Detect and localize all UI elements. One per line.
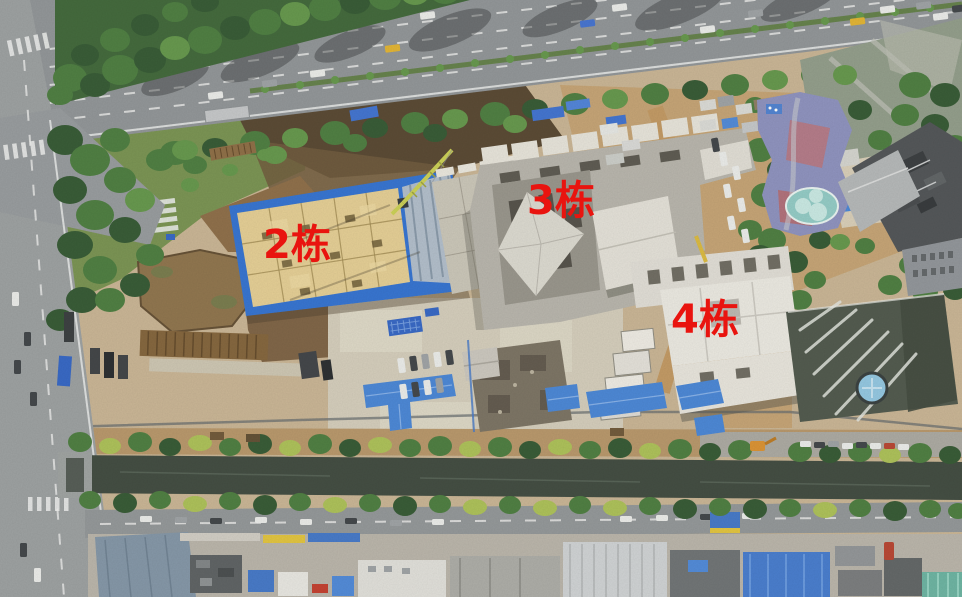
photo-grain xyxy=(0,0,962,597)
label-building-2: 2栋 xyxy=(263,222,331,268)
label-building-4: 4栋 xyxy=(671,297,739,343)
label-building-3: 3栋 xyxy=(527,178,595,224)
construction-site-aerial-photo: 2栋 3栋 4栋 xyxy=(0,0,962,597)
